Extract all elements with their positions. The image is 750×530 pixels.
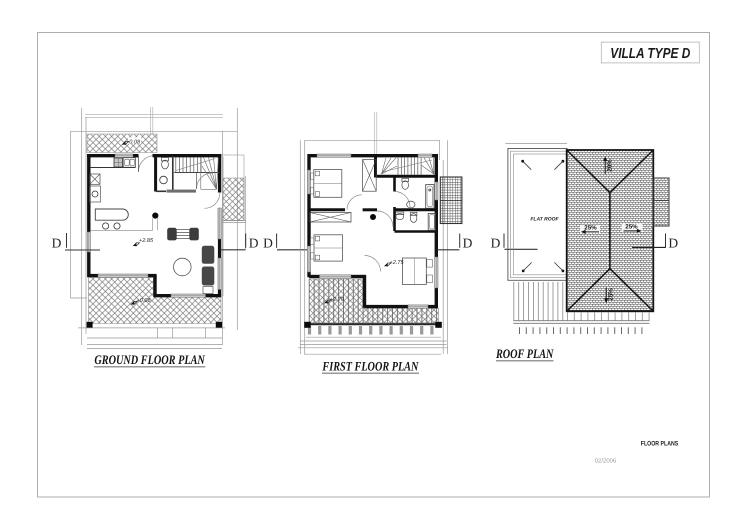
svg-text:+2.75: +2.75: [389, 260, 404, 266]
svg-text:VILLA TYPE D: VILLA TYPE D: [610, 46, 690, 62]
svg-text:GROUND FLOOR PLAN: GROUND FLOOR PLAN: [94, 352, 205, 367]
svg-text:FIRST FLOOR PLAN: FIRST FLOOR PLAN: [322, 358, 419, 373]
svg-text:FLOOR PLANS: FLOOR PLANS: [641, 440, 679, 447]
svg-text:25%: 25%: [584, 225, 597, 232]
svg-text:-0.08: -0.08: [127, 139, 141, 145]
svg-text:D: D: [491, 236, 501, 251]
svg-text:D: D: [668, 236, 678, 251]
svg-text:FLAT ROOF: FLAT ROOF: [530, 216, 559, 222]
svg-text:02/2006: 02/2006: [595, 457, 617, 464]
svg-text:20%: 20%: [606, 159, 613, 172]
svg-text:+2.85: +2.85: [139, 238, 154, 244]
svg-text:D: D: [52, 236, 62, 251]
svg-text:+0.06: +0.06: [136, 298, 151, 304]
svg-text:25%: 25%: [625, 224, 638, 231]
svg-text:D: D: [463, 236, 473, 251]
svg-text:ROOF PLAN: ROOF PLAN: [495, 346, 554, 361]
svg-text:+2.70: +2.70: [330, 297, 345, 303]
svg-text:25%: 25%: [607, 288, 614, 301]
svg-text:D: D: [249, 236, 259, 251]
svg-text:D: D: [263, 236, 273, 251]
